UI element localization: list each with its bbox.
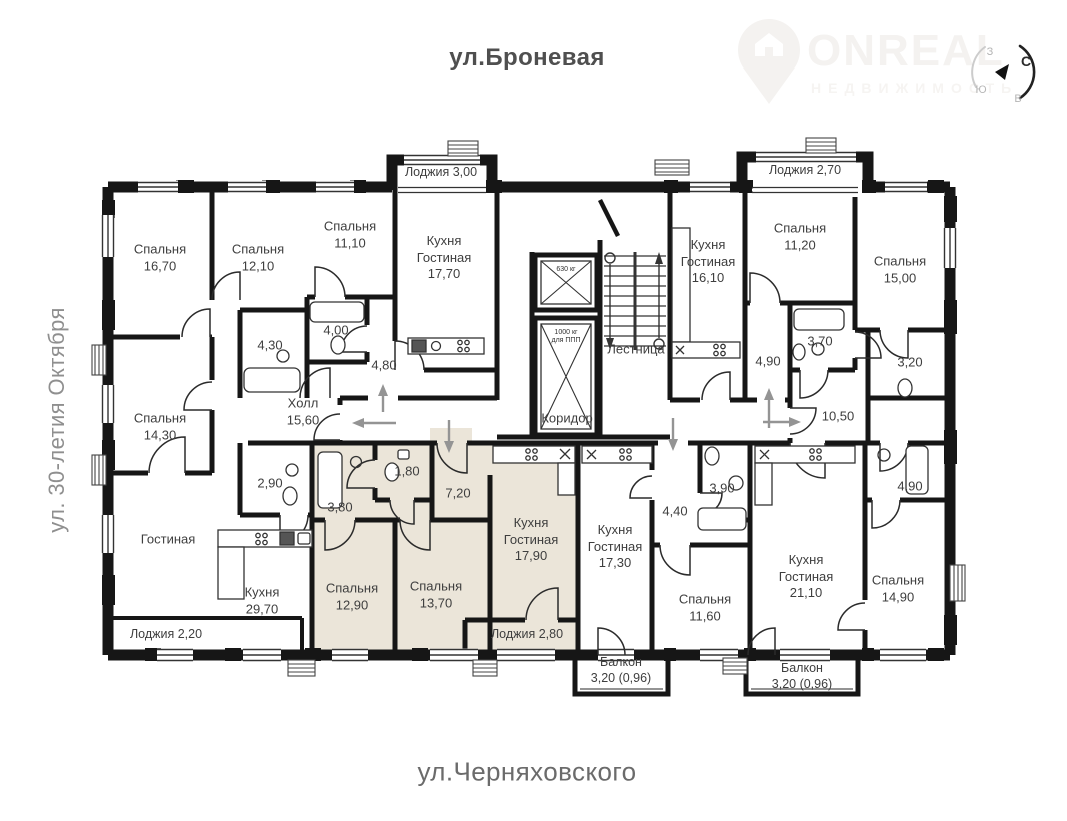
compass-needle-icon <box>995 64 1009 80</box>
room-label-hall-440: 4,40 <box>662 504 687 521</box>
room-label-bath-390: 3,90 <box>709 481 734 498</box>
compass: С З Ю В <box>948 18 1058 128</box>
room-label-stairs: Лестница <box>607 342 664 359</box>
room-label-bedroom-1290: Спальня12,90 <box>326 580 378 613</box>
room-label-balcony-right: Балкон3,20 (0,96) <box>772 660 832 692</box>
room-label-bedroom-1120: Спальня11,20 <box>774 220 826 253</box>
room-label-storage-320: 3,20 <box>897 355 922 372</box>
room-label-kitchen-living-1610: Кухня Гостиная16,10 <box>681 237 736 287</box>
elevator-small-label: 630 кг <box>556 266 576 273</box>
room-label-bath-400: 4,00 <box>323 323 348 340</box>
elevators: 630 кг 1000 кг для ППП <box>535 255 597 435</box>
room-label-kitchen-living-1770: Кухня Гостиная17,70 <box>417 233 472 283</box>
room-label-bath-370: 3,70 <box>807 334 832 351</box>
room-label-bedroom-1670: Спальня16,70 <box>134 241 186 274</box>
room-label-bedroom-1430: Спальня14,30 <box>134 410 186 443</box>
room-label-loggia-270: Лоджия 2,70 <box>769 162 841 178</box>
room-label-bedroom-1160: Спальня11,60 <box>679 591 731 624</box>
compass-west: З <box>987 46 994 58</box>
room-label-bedroom-1370: Спальня13,70 <box>410 578 462 611</box>
room-label-bath-380: 3,80 <box>327 500 352 517</box>
room-label-wc-290: 2,90 <box>257 476 282 493</box>
room-label-corridor: Коридор <box>541 411 592 428</box>
room-label-bedroom-1110: Спальня11,10 <box>324 218 376 251</box>
room-label-bath-490: 4,90 <box>897 479 922 496</box>
room-label-balcony-left: Балкон3,20 (0,96) <box>591 654 651 686</box>
room-label-bath-430: 4,30 <box>257 338 282 355</box>
onreal-pin-icon <box>735 18 805 106</box>
elevator-large-label-2: для ППП <box>552 337 581 344</box>
compass-east: В <box>1014 93 1021 105</box>
room-label-kitchen-living-1790: Кухня Гостиная17,90 <box>504 515 559 565</box>
room-label-wc-180: 1,80 <box>394 464 419 481</box>
room-label-bedroom-1500: Спальня15,00 <box>874 253 926 286</box>
room-label-bedroom-1210: Спальня12,10 <box>232 241 284 274</box>
compass-north: С <box>1021 53 1031 69</box>
elevator-large-label-1: 1000 кг <box>554 329 578 336</box>
room-label-hall-1560: Холл15,60 <box>287 395 320 428</box>
room-label-loggia-280: Лоджия 2,80 <box>491 626 563 642</box>
room-label-loggia-300: Лоджия 3,00 <box>405 164 477 180</box>
room-label-hall-480: 4,80 <box>371 358 396 375</box>
street-label-bronevaya: ул.Броневая <box>449 44 605 72</box>
room-label-kitchen-living-2110: Кухня Гостиная21,10 <box>779 552 834 602</box>
street-label-chernyakhovskogo: ул.Черняховского <box>417 757 636 788</box>
room-label-kitchen-living-1730: Кухня Гостиная17,30 <box>588 522 643 572</box>
room-label-hall-1050: 10,50 <box>822 409 855 426</box>
room-label-living: Гостиная <box>141 532 196 549</box>
room-label-loggia-220: Лоджия 2,20 <box>130 626 202 642</box>
street-label-30-letiya-oktyabrya: ул. 30-летия Октября <box>44 307 70 533</box>
stairs <box>604 252 666 350</box>
room-label-hall-720: 7,20 <box>445 486 470 503</box>
room-label-bedroom-1490: Спальня14,90 <box>872 572 924 605</box>
floorplan-page: ONREAL НЕДВИЖИМОСТЬ ул.Броневая ул.Черня… <box>0 0 1067 821</box>
compass-south: Ю <box>975 84 986 96</box>
room-label-kitchen-2970: Кухня29,70 <box>245 584 280 617</box>
room-label-hall-490: 4,90 <box>755 354 780 371</box>
